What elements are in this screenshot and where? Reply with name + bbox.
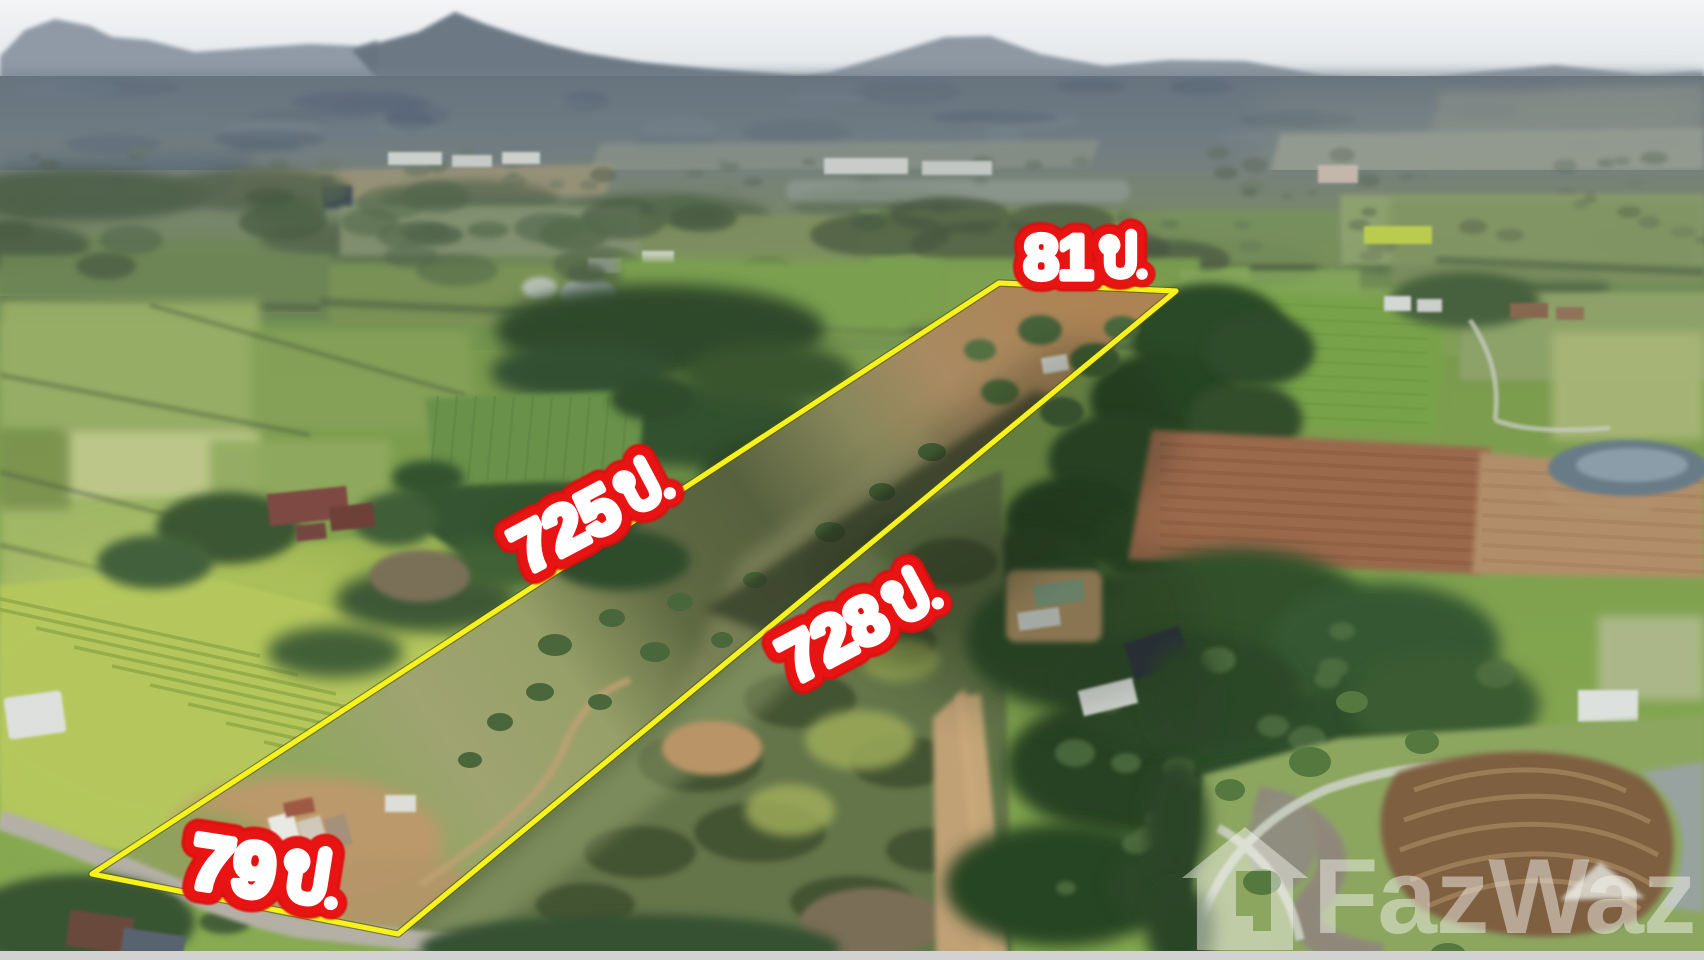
svg-text:79: 79 (185, 819, 282, 916)
svg-text:FazWaz: FazWaz (1313, 836, 1695, 956)
svg-text:81: 81 (1024, 223, 1093, 292)
